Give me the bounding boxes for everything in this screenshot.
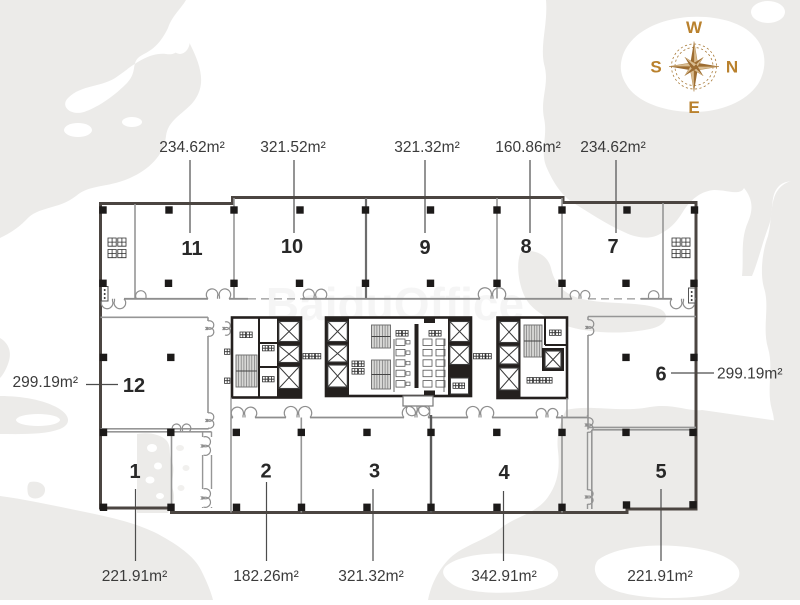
svg-text:4: 4 <box>498 462 510 484</box>
svg-text:E: E <box>688 98 699 117</box>
svg-text:299.19m²: 299.19m² <box>717 366 782 383</box>
svg-text:S: S <box>650 58 661 77</box>
svg-text:234.62m²: 234.62m² <box>159 139 224 156</box>
svg-text:299.19m²: 299.19m² <box>13 374 78 391</box>
svg-text:221.91m²: 221.91m² <box>102 568 167 585</box>
svg-text:8: 8 <box>520 236 531 258</box>
svg-text:321.52m²: 321.52m² <box>260 139 325 156</box>
svg-text:10: 10 <box>281 236 303 258</box>
svg-text:N: N <box>726 58 738 77</box>
svg-text:234.62m²: 234.62m² <box>580 139 645 156</box>
svg-text:3: 3 <box>369 461 380 483</box>
svg-text:1: 1 <box>129 461 140 483</box>
svg-text:11: 11 <box>181 238 202 260</box>
svg-text:321.32m²: 321.32m² <box>338 568 403 585</box>
svg-text:12: 12 <box>123 375 145 397</box>
svg-text:6: 6 <box>655 364 666 386</box>
svg-text:7: 7 <box>607 236 618 258</box>
svg-text:W: W <box>686 18 703 37</box>
svg-text:321.32m²: 321.32m² <box>394 139 459 156</box>
svg-text:5: 5 <box>655 461 666 483</box>
svg-text:9: 9 <box>419 237 430 259</box>
svg-text:2: 2 <box>260 461 271 483</box>
svg-text:182.26m²: 182.26m² <box>233 568 298 585</box>
svg-text:342.91m²: 342.91m² <box>471 568 536 585</box>
svg-text:160.86m²: 160.86m² <box>495 139 560 156</box>
svg-text:221.91m²: 221.91m² <box>627 568 692 585</box>
